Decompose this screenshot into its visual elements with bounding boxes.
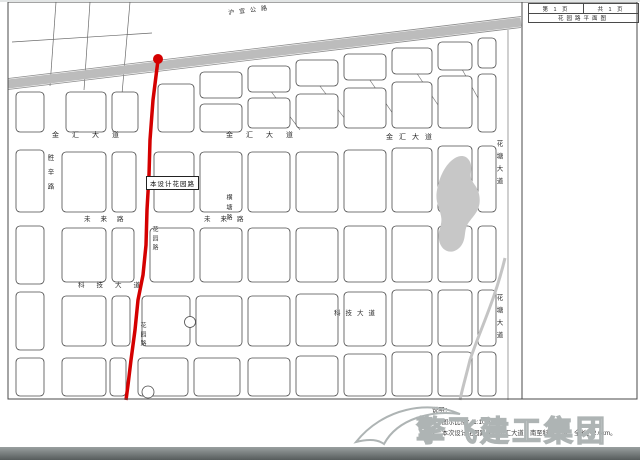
city-block	[200, 228, 242, 282]
road-label-keji-1: 科技大道	[78, 279, 152, 289]
city-block	[438, 42, 472, 70]
road-label-jinhui-1: 金汇大道	[52, 130, 132, 140]
city-block	[296, 294, 338, 346]
city-block	[16, 92, 44, 132]
city-block	[344, 54, 386, 80]
city-block	[438, 226, 472, 282]
city-block	[296, 152, 338, 212]
city-block	[16, 150, 44, 212]
city-block	[16, 226, 44, 284]
road-label-huyi: 沪宜公路	[228, 2, 273, 16]
city-block	[112, 92, 138, 132]
city-block	[112, 296, 130, 346]
city-block	[344, 292, 386, 346]
city-block	[112, 228, 134, 282]
city-block	[438, 352, 472, 396]
city-block	[248, 358, 290, 396]
city-block	[296, 356, 338, 396]
page-number: 第 1 页	[529, 4, 583, 13]
city-block	[248, 66, 290, 92]
page-total: 共 1 页	[583, 4, 638, 13]
design-route-callout: 本设计花园路	[146, 176, 199, 190]
water-area	[436, 156, 479, 252]
road-label-weilai-1: 未来路	[84, 213, 134, 223]
road-label-keji-2: 科技大道	[334, 307, 380, 317]
city-block	[438, 290, 472, 346]
road-label-jinhui-2: 金汇大道	[226, 130, 306, 140]
photo-bottom-edge	[0, 447, 640, 460]
road-label-shengxin: 胜辛路	[44, 154, 54, 198]
city-block	[248, 98, 290, 128]
city-block	[478, 226, 496, 282]
city-block	[62, 152, 106, 212]
roundabout	[142, 386, 154, 398]
city-block	[478, 74, 496, 132]
watermark-text: 擎飞建工集团	[416, 408, 608, 450]
city-block	[62, 358, 106, 396]
city-block	[344, 354, 386, 396]
road-plan-map	[0, 0, 640, 448]
city-block	[248, 228, 290, 282]
road-label-huatang-2: 花塘大道	[493, 294, 503, 344]
road-label-huatang-1: 花塘大道	[493, 140, 503, 190]
city-block	[438, 146, 472, 212]
diagonal-roads	[252, 44, 488, 130]
city-block	[248, 152, 290, 212]
highway-band	[8, 17, 521, 90]
city-block	[296, 94, 338, 128]
city-block	[296, 228, 338, 282]
city-block	[110, 358, 126, 396]
road-label-hengtang: 横塘路	[224, 194, 233, 224]
city-block	[392, 148, 432, 212]
city-block	[142, 296, 190, 346]
city-block	[392, 226, 432, 282]
city-block	[478, 352, 496, 396]
city-block	[344, 150, 386, 212]
city-block	[392, 352, 432, 396]
city-block	[112, 152, 136, 212]
city-block	[392, 82, 432, 128]
title-block: 第 1 页 共 1 页 花园路平面图	[528, 3, 639, 23]
city-block	[344, 226, 386, 282]
city-block	[296, 60, 338, 86]
city-block	[62, 228, 106, 282]
road-label-jinhui-3: 金汇大道	[386, 132, 438, 142]
photo-top-edge	[0, 0, 640, 2]
road-label-huayuan-1: 花园路	[150, 226, 159, 253]
city-block	[438, 76, 472, 128]
city-block	[16, 358, 44, 396]
road-label-huayuan-2: 花园路	[138, 322, 147, 349]
city-block	[196, 296, 242, 346]
city-block	[194, 358, 240, 396]
city-block	[158, 84, 194, 132]
city-block	[62, 296, 106, 346]
route-start-dot	[153, 54, 163, 64]
sheet-frame	[8, 2, 637, 399]
city-block	[16, 292, 44, 350]
city-block	[392, 290, 432, 346]
city-block	[200, 72, 242, 98]
drawing-title: 花园路平面图	[529, 14, 638, 22]
city-block	[200, 152, 242, 212]
city-block	[138, 358, 188, 396]
city-block	[478, 38, 496, 68]
city-block	[392, 48, 432, 74]
city-block	[344, 88, 386, 128]
city-block	[66, 92, 106, 132]
city-block	[200, 104, 242, 132]
roundabout	[185, 317, 196, 328]
city-block	[248, 296, 290, 346]
minor-roads-topleft	[12, 2, 152, 94]
